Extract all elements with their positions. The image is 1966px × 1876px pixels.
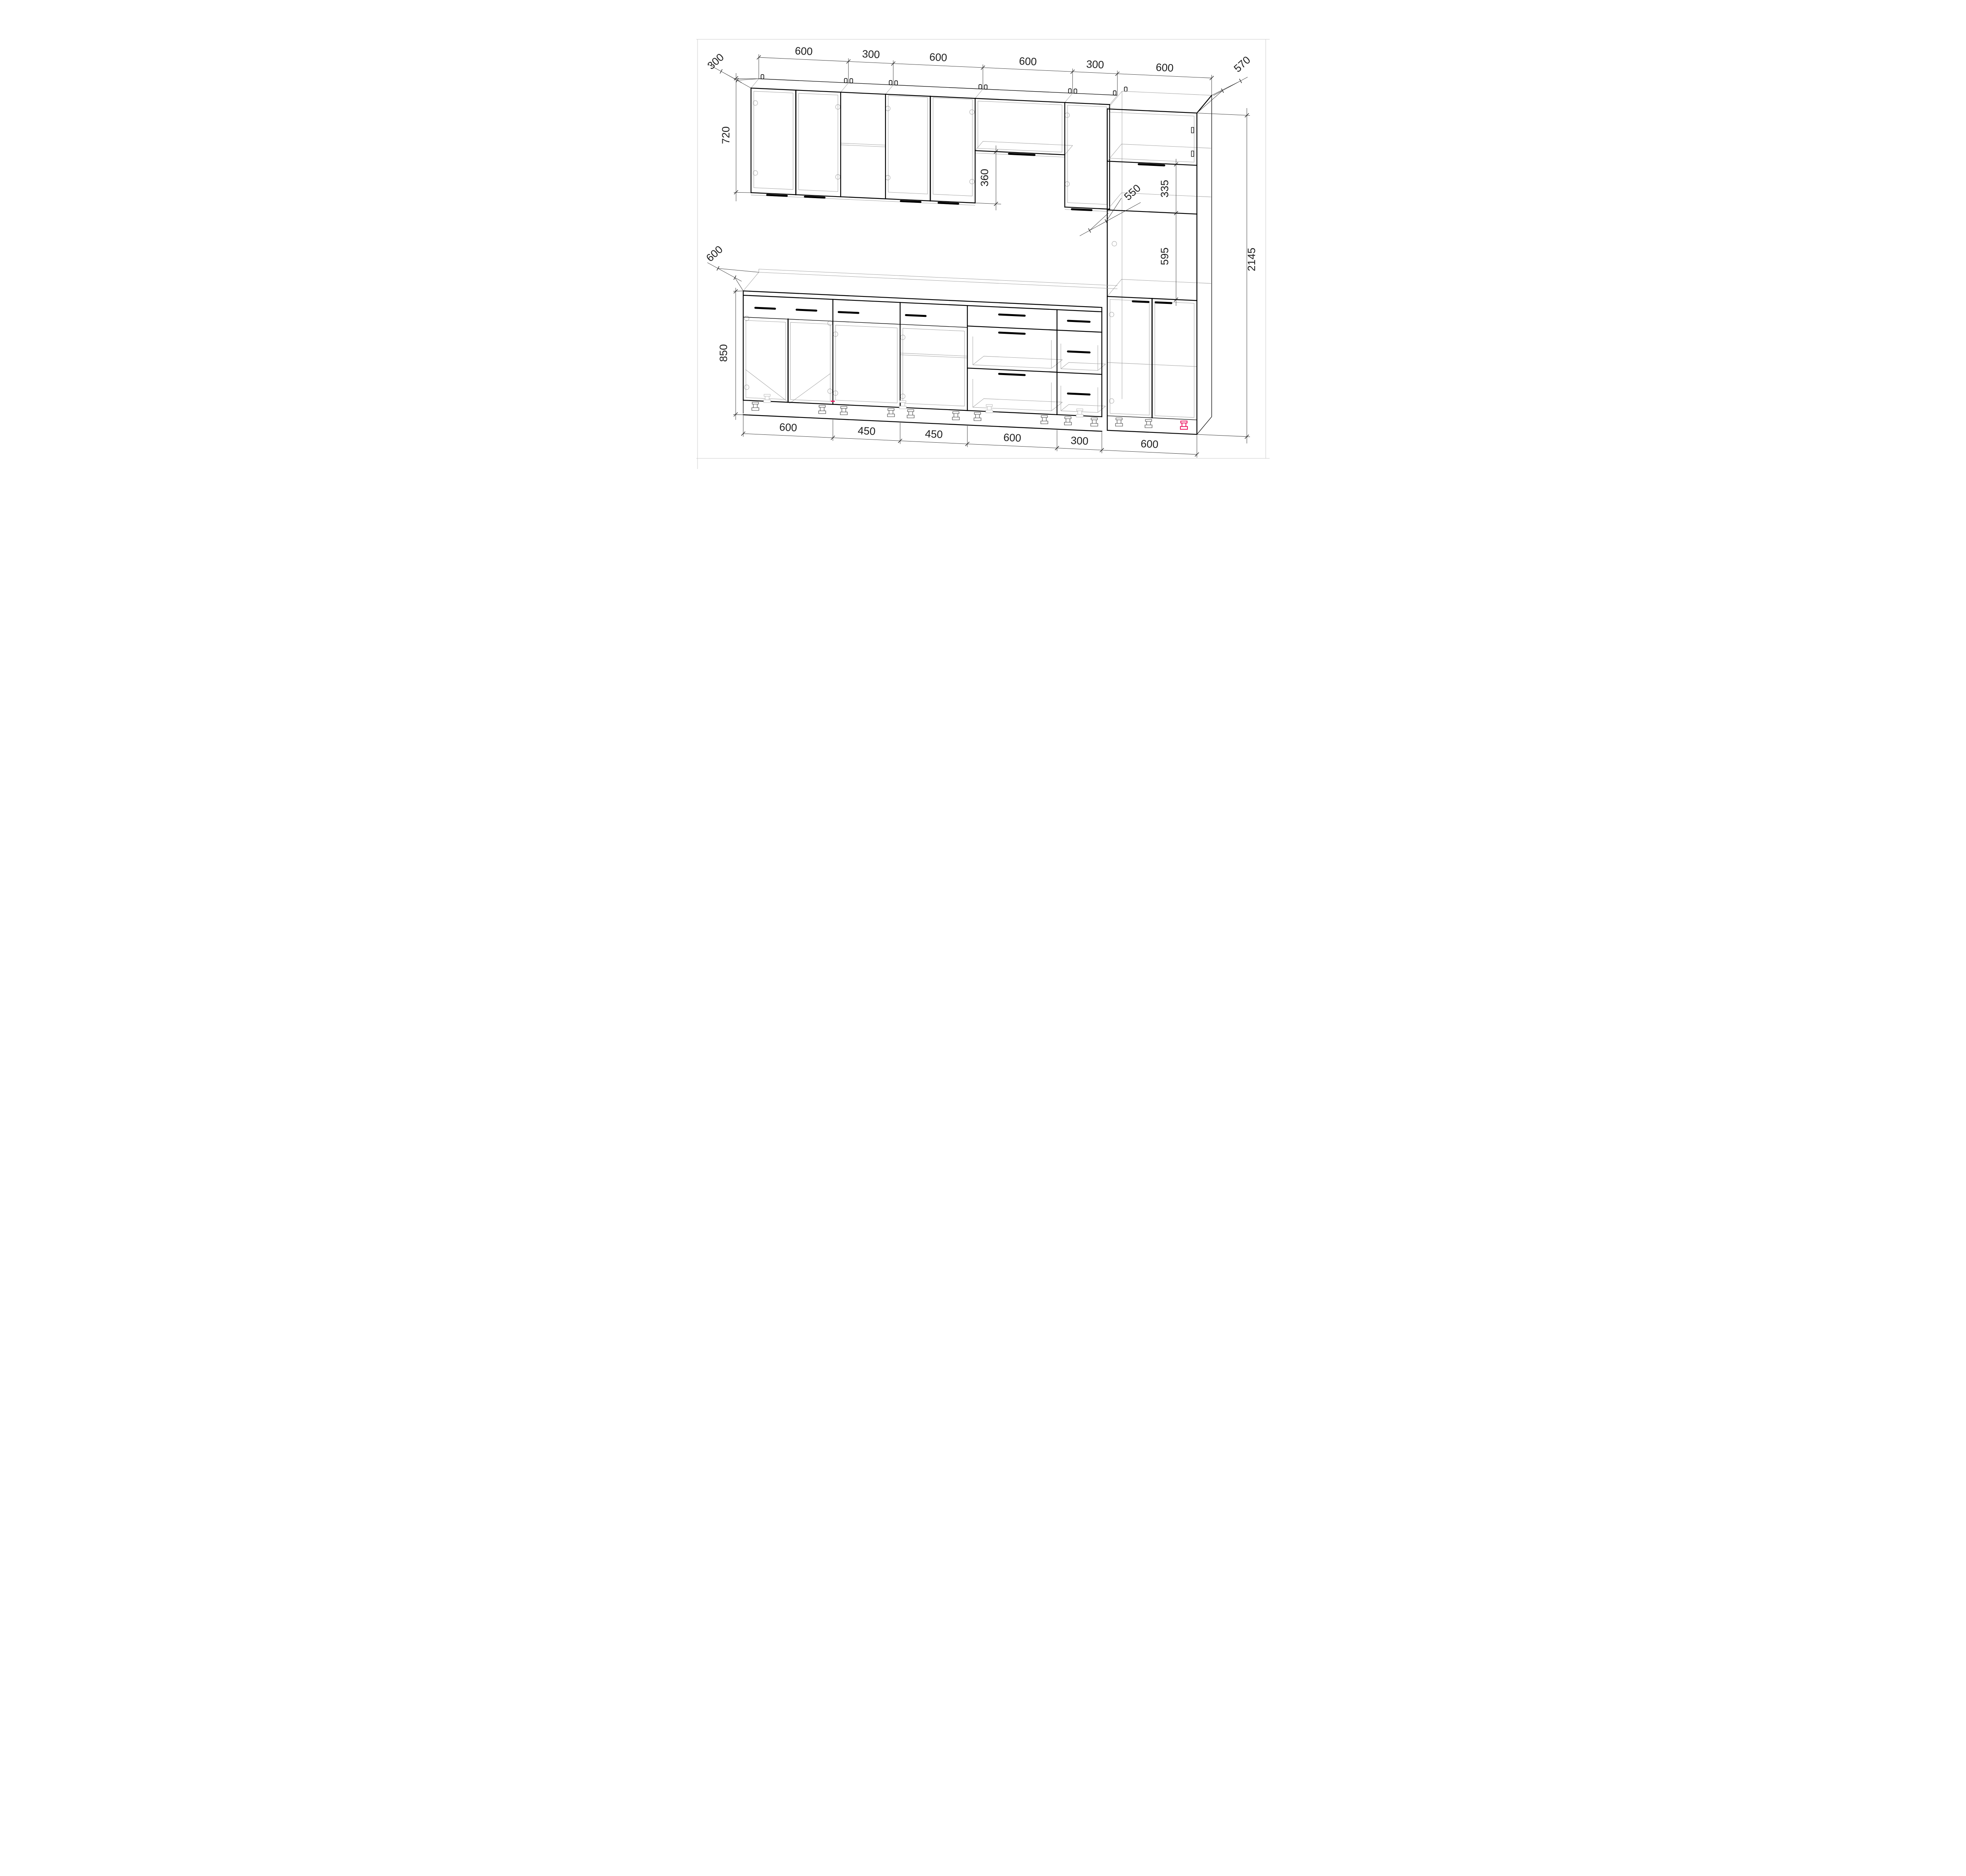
dim-top-3: 600 <box>929 51 947 64</box>
dim-top-5: 300 <box>1086 58 1104 71</box>
drawing-sheet: 600 300 600 600 300 600 600 450 450 600 … <box>696 0 1270 469</box>
dim-base-height: 850 <box>718 344 729 362</box>
hanging-brackets <box>761 75 1127 95</box>
worktop <box>743 269 1117 312</box>
dim-bottom-4: 600 <box>1003 431 1021 444</box>
plinth-legs <box>752 394 1187 429</box>
dimension-right-side: 570 335 595 550 2145 <box>1080 54 1257 443</box>
dim-bottom-6: 600 <box>1140 438 1158 450</box>
sheet-frame <box>696 39 1270 469</box>
dim-top-2: 300 <box>862 48 880 61</box>
dim-tall-depth: 570 <box>1232 54 1253 74</box>
dim-oven-height: 595 <box>1159 247 1171 265</box>
door-handles-base <box>755 308 1090 395</box>
dim-bottom-2: 450 <box>858 425 876 437</box>
dim-shelf-gap: 335 <box>1159 180 1171 197</box>
wall-cabinet-row <box>751 75 1127 212</box>
dim-interior-depth: 550 <box>1122 182 1143 202</box>
dimension-bottom-chain: 600 450 450 600 300 600 <box>741 416 1199 458</box>
dim-top-4: 600 <box>1019 55 1037 68</box>
dim-top-1: 600 <box>795 45 813 57</box>
dim-hood-gap: 360 <box>979 169 990 186</box>
accent-leg <box>1180 421 1187 429</box>
dim-top-6: 600 <box>1156 61 1174 74</box>
dim-wall-height: 720 <box>720 126 732 144</box>
kitchen-elevation-drawing: 600 300 600 600 300 600 600 450 450 600 … <box>696 0 1270 469</box>
accent-mark <box>831 401 835 402</box>
door-handles-upper <box>767 154 1092 210</box>
dim-base-depth: 600 <box>704 243 725 264</box>
dim-tall-height: 2145 <box>1246 248 1257 271</box>
dim-wall-depth: 300 <box>705 51 726 72</box>
dim-bottom-5: 300 <box>1070 434 1088 447</box>
dimension-hood-gap: 360 <box>975 145 1001 210</box>
base-cabinet-row <box>743 295 1106 431</box>
hinge-circles <box>753 101 1070 186</box>
dim-bottom-3: 450 <box>925 428 943 440</box>
dim-bottom-1: 600 <box>779 421 797 434</box>
